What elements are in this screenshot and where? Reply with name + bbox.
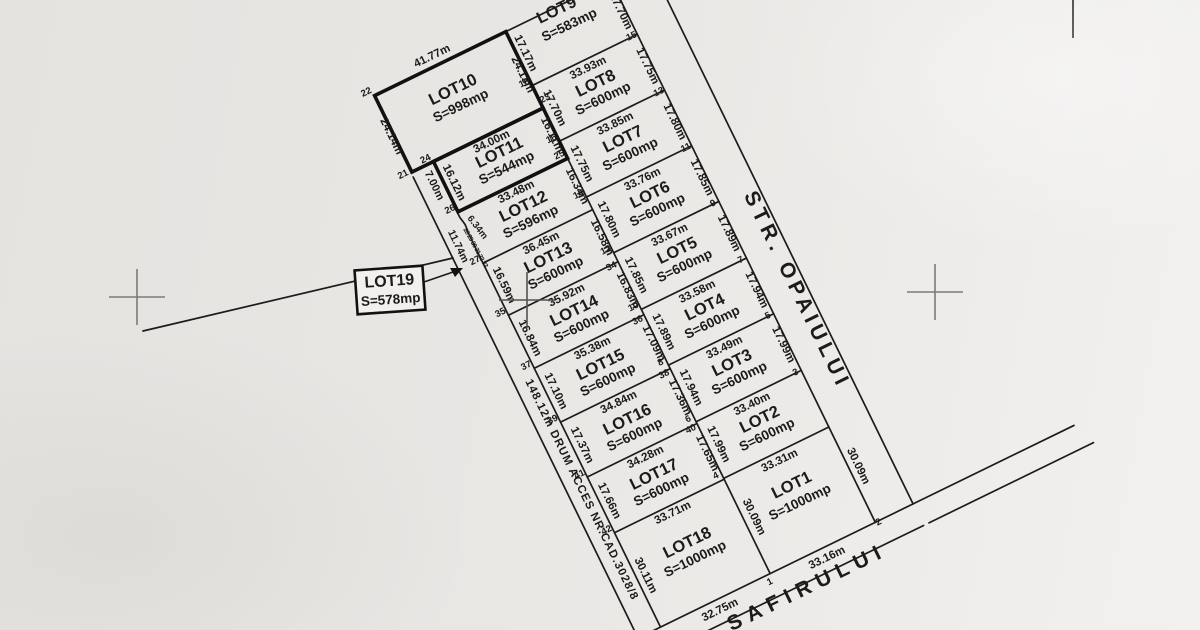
cadastral-plan-scan: STR. OPAIULUI STR. SAFIRULUI 148.12m DRU… <box>0 0 1200 630</box>
corner-number: 2 <box>874 516 884 528</box>
lot-edge-right-measure: 17.99m <box>769 325 797 365</box>
lot-edge-right-measure: 17.70m <box>607 0 635 31</box>
callout-arrow <box>424 271 456 282</box>
lot-edge-left-measure: 24.14m <box>377 116 405 156</box>
corner-number: 7 <box>736 254 746 266</box>
lot-edge-right-measure: 17.75m <box>633 46 661 86</box>
corner-number: 9 <box>708 198 718 210</box>
lot-name: LOT19 <box>364 271 415 291</box>
corner-number: 15 <box>625 29 640 44</box>
road-width-label: 7.00m <box>422 169 447 202</box>
corner-number: 1 <box>765 576 775 589</box>
plan-rotated-group: STR. OPAIULUI STR. SAFIRULUI 148.12m DRU… <box>283 0 1101 630</box>
lot-edge-right-measure: 17.85m <box>688 157 716 197</box>
lot-edge-left-measure: 30.09m <box>740 497 768 537</box>
fiducial-cross <box>109 269 165 325</box>
lot-edge-right-measure: 17.94m <box>742 270 770 310</box>
fiducial-cross <box>907 264 963 320</box>
corner-number: 35 <box>493 305 508 320</box>
lot-edge-right-measure: 17.80m <box>660 102 688 142</box>
plan-drawing: STR. OPAIULUI STR. SAFIRULUI 148.12m DRU… <box>0 0 1200 630</box>
screen-extras: LOT19 S=578mp <box>109 0 1073 331</box>
corner-number: 22 <box>359 85 373 100</box>
lot19-callout: LOT19 S=578mp <box>355 266 426 315</box>
corner-number: 11 <box>679 140 693 155</box>
lot-edge-right-measure: 17.89m <box>715 213 743 253</box>
corner-number: 3 <box>791 366 801 378</box>
